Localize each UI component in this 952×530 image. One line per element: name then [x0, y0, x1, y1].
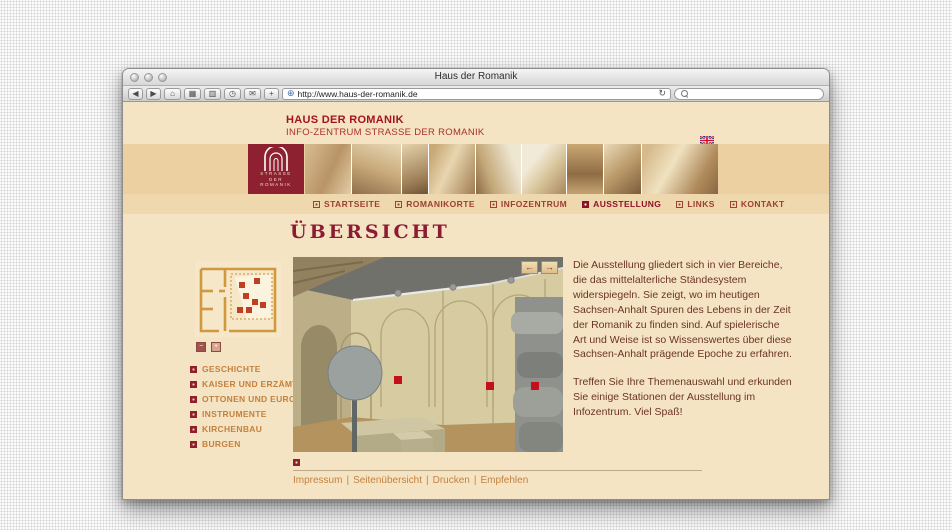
nav-label: AUSSTELLUNG: [593, 199, 661, 209]
add-bookmark-button[interactable]: +: [264, 88, 279, 100]
zoom-out-button[interactable]: −: [196, 342, 206, 352]
main-navigation: STARTSEITE ROMANIKORTE INFOZENTRUM AUSST…: [123, 194, 829, 214]
webpage: HAUS DER ROMANIK INFO-ZENTRUM STRASSE DE…: [123, 102, 829, 500]
search-input[interactable]: [674, 88, 824, 100]
sidebar-item-label: OTTONEN UND EUROPA: [202, 394, 308, 404]
site-header: HAUS DER ROMANIK INFO-ZENTRUM STRASSE DE…: [123, 102, 829, 144]
footer-link-impressum[interactable]: Impressum: [293, 475, 342, 486]
page-body: ÜBERSICHT: [123, 214, 829, 500]
banner-photo: [305, 144, 351, 194]
footer-link-empfehlen[interactable]: Empfehlen: [480, 475, 528, 486]
banner-photo: [642, 144, 718, 194]
floorplan-map[interactable]: [195, 261, 281, 342]
window-controls: [130, 73, 167, 82]
footer-link-seitenuebersicht[interactable]: Seitenübersicht: [353, 475, 422, 486]
titlebar[interactable]: Haus der Romanik: [123, 69, 829, 86]
desktop-background: Haus der Romanik ◀ ▶ ⌂ ▦ ▥ ◷ ✉ + ⊕ http:…: [0, 0, 952, 530]
nav-label: STARTSEITE: [324, 199, 380, 209]
square-bullet-icon: [490, 201, 497, 208]
banner-photo: [352, 144, 401, 194]
square-bullet-icon: [190, 381, 197, 388]
intro-paragraph: Treffen Sie Ihre Themenauswahl und erkun…: [573, 375, 792, 420]
bookmarks-button[interactable]: ▥: [204, 88, 221, 100]
square-bullet-icon: [395, 201, 402, 208]
romanesque-arch-icon: [261, 147, 291, 171]
home-button[interactable]: ⌂: [164, 88, 181, 100]
sidebar-item-label: INSTRUMENTE: [202, 409, 267, 419]
footer-link-drucken[interactable]: Drucken: [433, 475, 470, 486]
nav-label: INFOZENTRUM: [501, 199, 567, 209]
nav-item-kontakt[interactable]: KONTAKT: [730, 199, 785, 209]
nav-label: ROMANIKORTE: [406, 199, 475, 209]
sidebar-item-label: GESCHICHTE: [202, 364, 261, 374]
footer-separator: |: [426, 475, 429, 486]
footer-separator: |: [346, 475, 349, 486]
previous-view-button[interactable]: ←: [521, 261, 538, 274]
square-bullet-icon: [190, 441, 197, 448]
logo-text-line: ROMANIK: [248, 182, 304, 188]
banner-photo: [476, 144, 520, 194]
tab-overview-button[interactable]: ▦: [184, 88, 201, 100]
site-favicon-icon: ⊕: [287, 89, 295, 98]
banner-photo: [604, 144, 641, 194]
footer-links: Impressum|Seitenübersicht|Drucken|Empfeh…: [293, 475, 528, 486]
banner-photo: [567, 144, 602, 194]
sidebar-item-label: KIRCHENBAU: [202, 424, 262, 434]
intro-text: Die Ausstellung gliedert sich in vier Be…: [573, 258, 792, 433]
square-bullet-icon: [190, 426, 197, 433]
browser-window: Haus der Romanik ◀ ▶ ⌂ ▦ ▥ ◷ ✉ + ⊕ http:…: [122, 68, 830, 500]
banner-photo: [402, 144, 429, 194]
search-icon: [681, 90, 688, 97]
nav-item-links[interactable]: LINKS: [676, 199, 715, 209]
forward-button[interactable]: ▶: [146, 88, 161, 100]
back-to-top-button[interactable]: [293, 459, 300, 466]
square-bullet-icon: [190, 396, 197, 403]
zoom-in-button[interactable]: +: [211, 342, 221, 352]
square-bullet-icon: [313, 201, 320, 208]
sidebar-item-label: BURGEN: [202, 439, 241, 449]
close-window-button[interactable]: [130, 73, 139, 82]
mail-button[interactable]: ✉: [244, 88, 261, 100]
scene-navigation: ← →: [521, 261, 558, 274]
square-bullet-icon: [730, 201, 737, 208]
history-button[interactable]: ◷: [224, 88, 241, 100]
intro-paragraph: Die Ausstellung gliedert sich in vier Be…: [573, 258, 792, 362]
nav-item-startseite[interactable]: STARTSEITE: [313, 199, 380, 209]
nav-item-ausstellung[interactable]: AUSSTELLUNG: [582, 199, 661, 209]
zoom-window-button[interactable]: [158, 73, 167, 82]
next-view-button[interactable]: →: [541, 261, 558, 274]
site-subtitle: INFO-ZENTRUM STRASSE DER ROMANIK: [286, 127, 485, 138]
square-bullet-icon: [190, 366, 197, 373]
footer-divider: [293, 470, 702, 471]
nav-label: KONTAKT: [741, 199, 785, 209]
site-brand: HAUS DER ROMANIK INFO-ZENTRUM STRASSE DE…: [286, 114, 485, 138]
page-title: ÜBERSICHT: [290, 221, 450, 243]
exhibition-3d-view[interactable]: ← →: [293, 257, 563, 452]
site-title: HAUS DER ROMANIK: [286, 114, 485, 126]
banner-photo: [522, 144, 566, 194]
uk-flag-icon[interactable]: [700, 132, 714, 141]
reload-icon[interactable]: ↻: [658, 88, 666, 99]
minimize-window-button[interactable]: [144, 73, 153, 82]
square-bullet-icon: [676, 201, 683, 208]
nav-item-infozentrum[interactable]: INFOZENTRUM: [490, 199, 567, 209]
address-bar[interactable]: ⊕ http://www.haus-der-romanik.de ↻: [282, 88, 671, 100]
footer-separator: |: [474, 475, 477, 486]
url-text[interactable]: http://www.haus-der-romanik.de: [298, 89, 656, 99]
back-button[interactable]: ◀: [128, 88, 143, 100]
strasse-der-romanik-logo: STRASSE DER ROMANIK: [248, 144, 304, 194]
square-bullet-icon: [582, 201, 589, 208]
floorplan-zoom-controls: − +: [196, 342, 221, 352]
photo-banner: STRASSE DER ROMANIK: [123, 144, 829, 194]
banner-photo: [429, 144, 475, 194]
banner-photo-strip: [305, 144, 718, 194]
nav-item-romanikorte[interactable]: ROMANIKORTE: [395, 199, 475, 209]
square-bullet-icon: [190, 411, 197, 418]
browser-toolbar: ◀ ▶ ⌂ ▦ ▥ ◷ ✉ + ⊕ http://www.haus-der-ro…: [123, 86, 829, 102]
nav-label: LINKS: [687, 199, 715, 209]
window-title: Haus der Romanik: [123, 69, 829, 85]
